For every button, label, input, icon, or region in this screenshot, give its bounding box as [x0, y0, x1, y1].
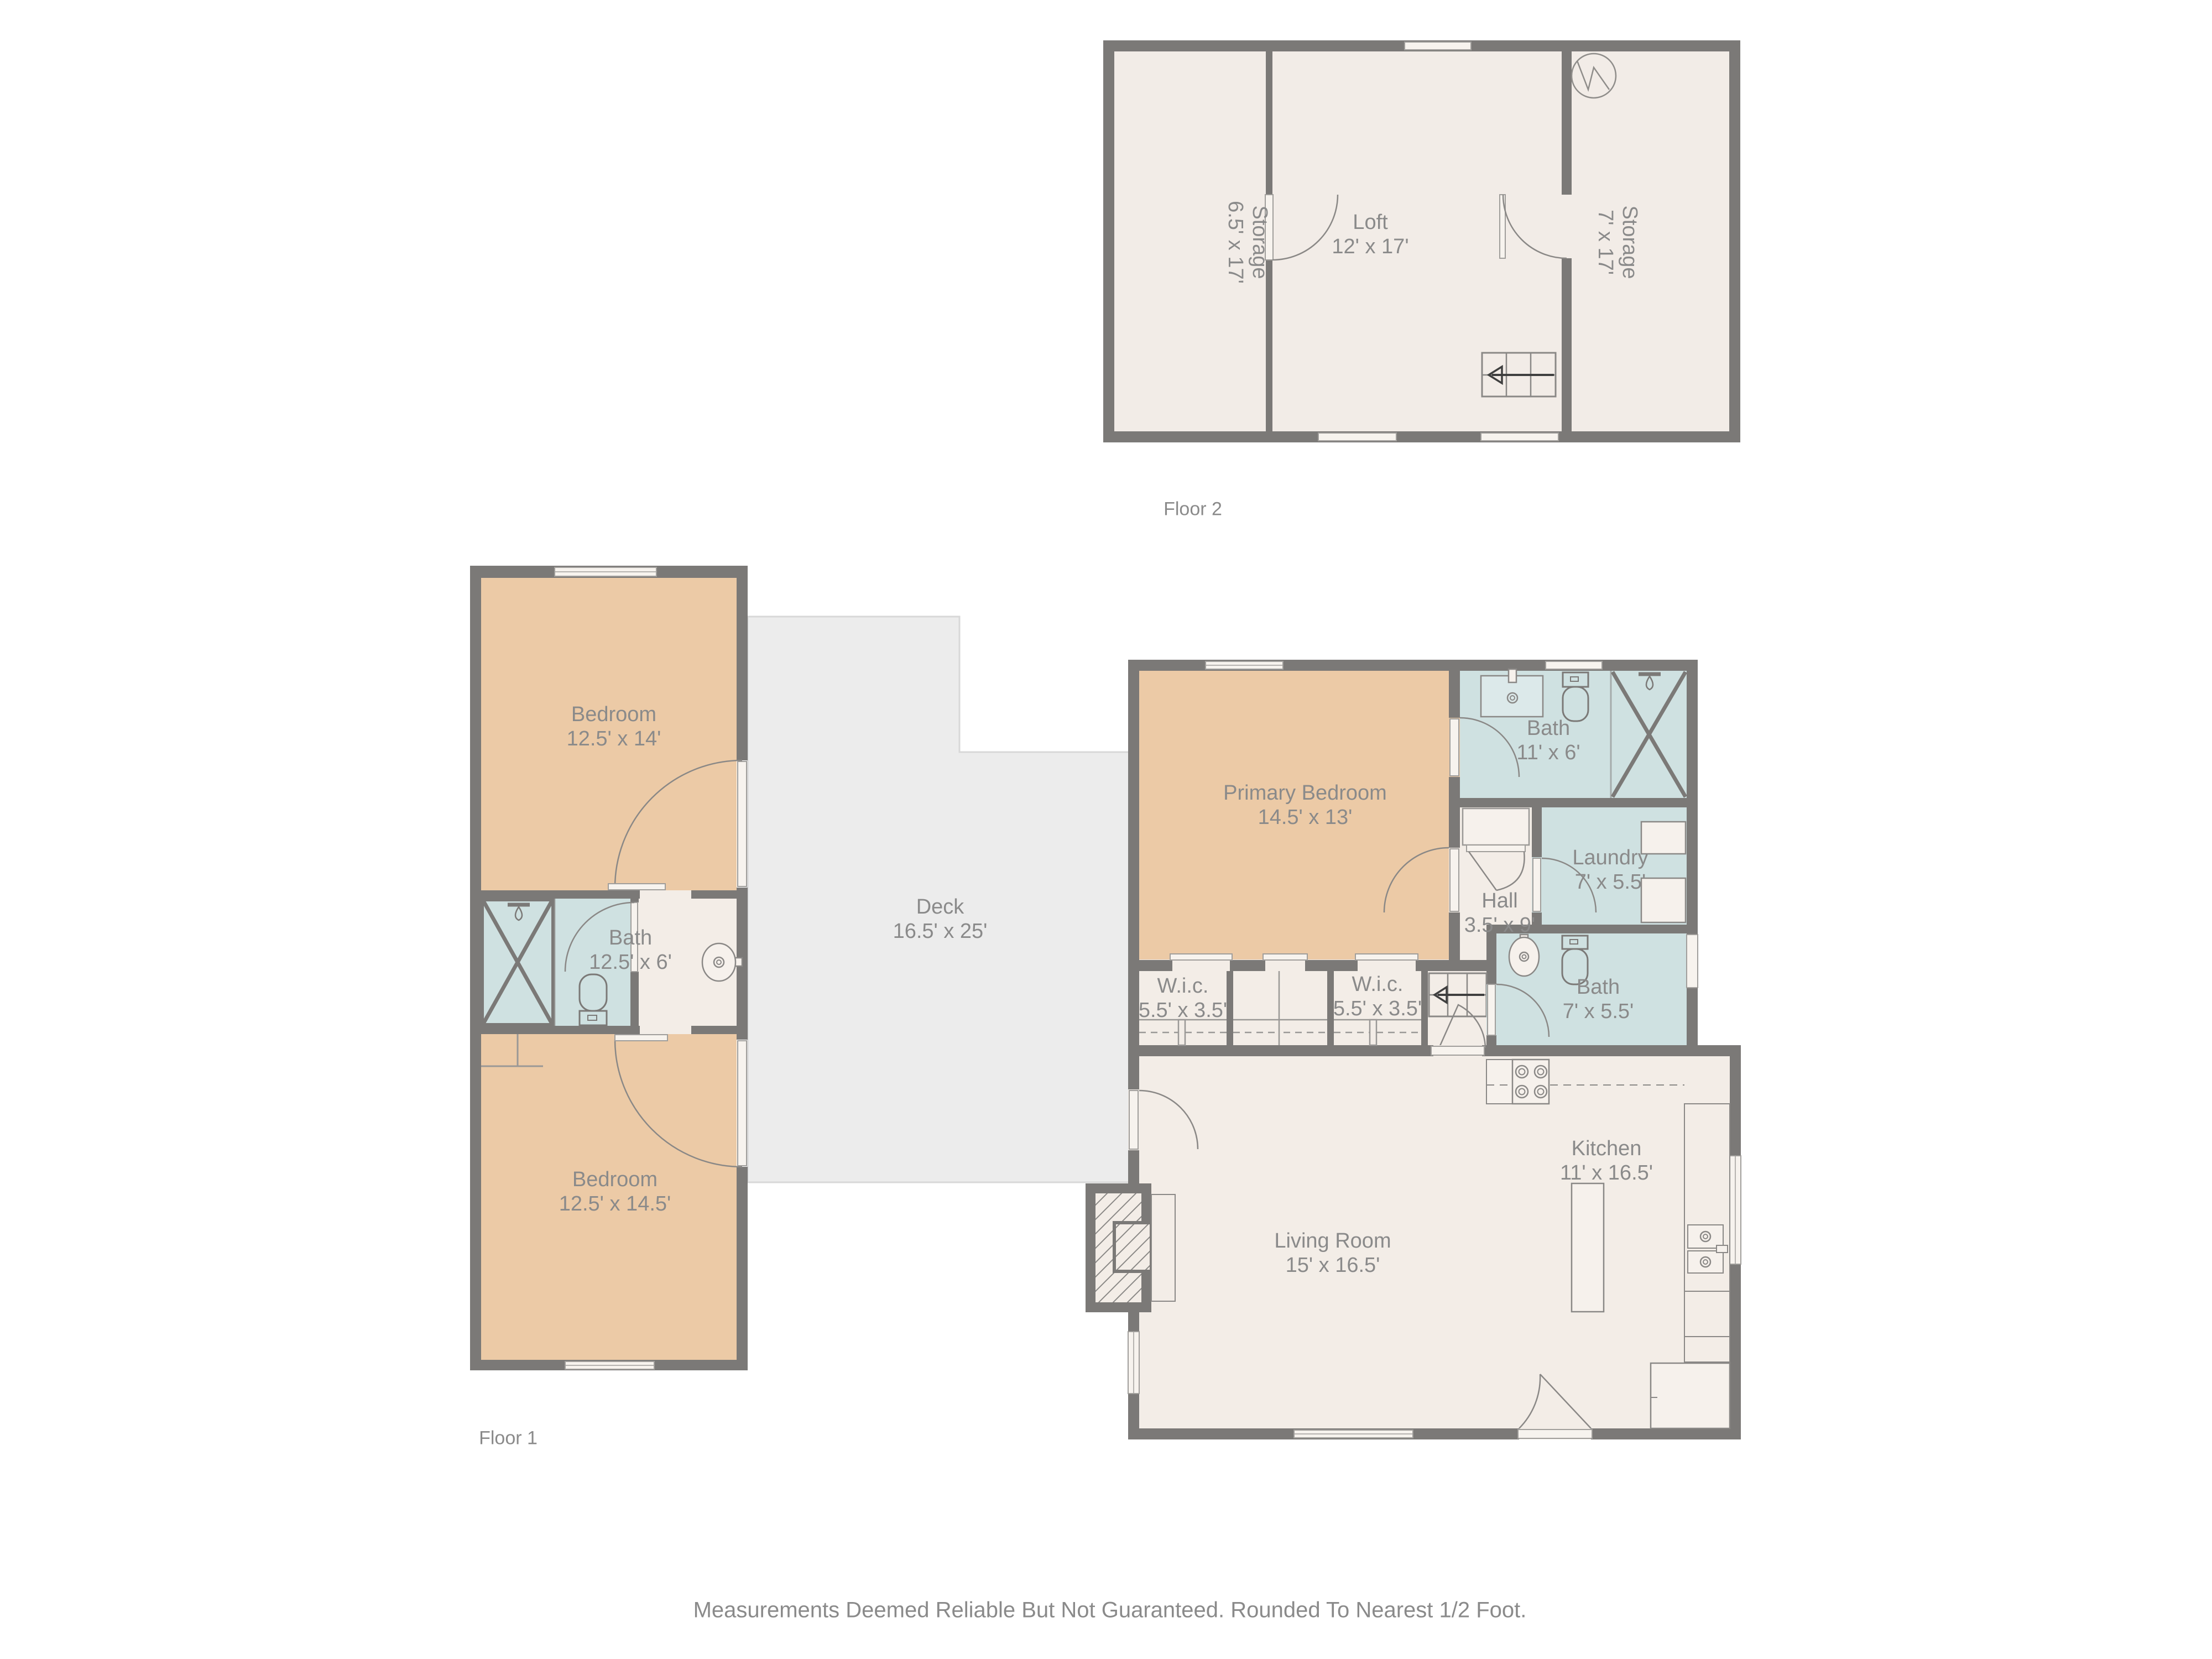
- room-label-bath-top: Bath 11' x 6': [1516, 716, 1580, 765]
- room-label-loft: Loft 12' x 17': [1332, 210, 1408, 259]
- door-leaf: [615, 1035, 667, 1041]
- door-leaf: [608, 884, 665, 890]
- room-dims: 7' x 5.5': [1563, 999, 1634, 1024]
- room-dims: 7' x 5.5': [1572, 870, 1648, 894]
- floor-plan-page: Storage 6.5' x 17' Loft 12' x 17' Storag…: [0, 0, 2212, 1659]
- room-label-bath-bottom: Bath 7' x 5.5': [1563, 975, 1634, 1024]
- room-label-storage-right: Storage 7' x 17': [1593, 205, 1642, 279]
- floor2-plan: [1103, 40, 1740, 442]
- room-name: W.i.c.: [1333, 972, 1422, 997]
- floor-plan-drawing: [0, 0, 2212, 1659]
- room-dims: 12' x 17': [1332, 234, 1408, 259]
- room-dims: 5.5' x 3.5': [1139, 998, 1227, 1022]
- room-dims: 3.5' x 9': [1464, 913, 1536, 937]
- floor1-title: Floor 1: [479, 1428, 538, 1449]
- room-dims: 15' x 16.5': [1274, 1253, 1391, 1277]
- room-label-hall: Hall 3.5' x 9': [1464, 889, 1536, 937]
- room-dims: 5.5' x 3.5': [1333, 997, 1422, 1021]
- floor2-title: Floor 2: [1164, 499, 1222, 520]
- room-name: Living Room: [1274, 1229, 1391, 1253]
- room-dims: 7' x 17': [1593, 205, 1618, 279]
- room-name: Storage: [1248, 201, 1272, 284]
- room-label-bedroom-top: Bedroom 12.5' x 14': [567, 702, 661, 751]
- room-dims: 12.5' x 14': [567, 727, 661, 751]
- disclaimer-text: Measurements Deemed Reliable But Not Gua…: [693, 1598, 1527, 1623]
- floor1-right-building: [1086, 660, 1741, 1439]
- room-label-living-room: Living Room 15' x 16.5': [1274, 1229, 1391, 1277]
- room-name: Bath: [1516, 716, 1580, 740]
- fridge-icon: [1651, 1363, 1730, 1428]
- room-name: Primary Bedroom: [1223, 781, 1387, 805]
- room-name: Laundry: [1572, 846, 1648, 870]
- room-name: Bedroom: [567, 702, 661, 727]
- room-dims: 14.5' x 13': [1223, 805, 1387, 830]
- toilet-icon: [580, 974, 607, 1025]
- room-label-laundry: Laundry 7' x 5.5': [1572, 846, 1648, 894]
- room-name: Bath: [1563, 975, 1634, 999]
- room-name: Loft: [1332, 210, 1408, 234]
- room-dims: 11' x 6': [1516, 740, 1580, 765]
- toilet-icon: [1563, 672, 1588, 721]
- room-dims: 16.5' x 25': [893, 919, 988, 943]
- vanity-sink-icon: [1481, 669, 1543, 717]
- room-label-wic-right: W.i.c. 5.5' x 3.5': [1333, 972, 1422, 1021]
- room-name: Storage: [1618, 205, 1642, 279]
- room-name: Deck: [893, 895, 988, 919]
- kitchen-island: [1572, 1183, 1604, 1312]
- room-label-wic-left: W.i.c. 5.5' x 3.5': [1139, 974, 1227, 1022]
- room-label-bedroom-bottom: Bedroom 12.5' x 14.5': [559, 1167, 671, 1216]
- room-label-storage-left: Storage 6.5' x 17': [1223, 201, 1272, 284]
- room-label-deck: Deck 16.5' x 25': [893, 895, 988, 943]
- room-name: Kitchen: [1560, 1136, 1653, 1161]
- room-name: W.i.c.: [1139, 974, 1227, 998]
- door-leaf: [1431, 1045, 1484, 1056]
- room-name: Hall: [1464, 889, 1536, 913]
- room-label-primary-bedroom: Primary Bedroom 14.5' x 13': [1223, 781, 1387, 830]
- room-label-bath-left: Bath 12.5' x 6': [589, 926, 672, 974]
- fireplace-icon: [1086, 1183, 1175, 1312]
- room-name: Bedroom: [559, 1167, 671, 1192]
- stove-icon: [1512, 1060, 1549, 1104]
- room-dims: 12.5' x 6': [589, 950, 672, 974]
- room-dims: 6.5' x 17': [1223, 201, 1248, 284]
- door-leaf: [1170, 954, 1418, 971]
- room-name: Bath: [589, 926, 672, 950]
- room-dims: 11' x 16.5': [1560, 1161, 1653, 1185]
- room-label-kitchen: Kitchen 11' x 16.5': [1560, 1136, 1653, 1185]
- room-dims: 12.5' x 14.5': [559, 1192, 671, 1216]
